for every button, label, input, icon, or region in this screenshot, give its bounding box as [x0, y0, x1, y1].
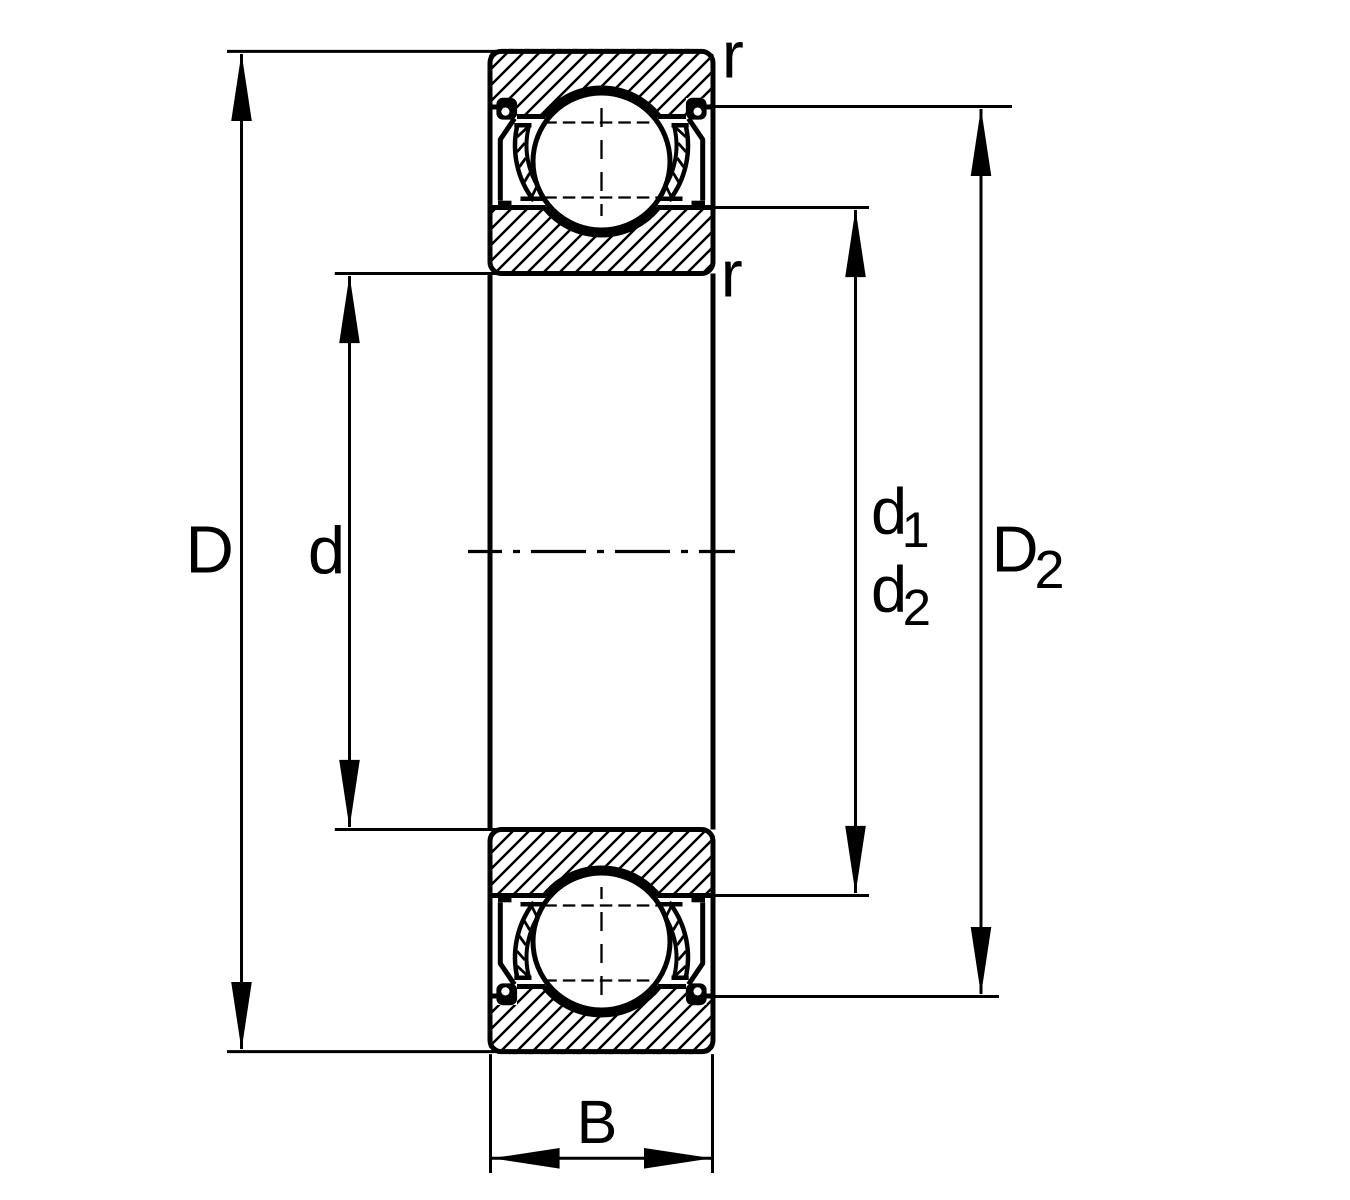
svg-text:1: 1 — [902, 502, 930, 558]
svg-text:2: 2 — [1035, 540, 1065, 600]
svg-text:D: D — [992, 513, 1039, 586]
svg-text:r: r — [722, 18, 744, 92]
svg-text:D: D — [186, 513, 234, 588]
svg-text:2: 2 — [903, 579, 931, 636]
svg-text:r: r — [721, 236, 743, 310]
svg-text:B: B — [577, 1088, 618, 1156]
svg-text:d: d — [308, 513, 345, 588]
